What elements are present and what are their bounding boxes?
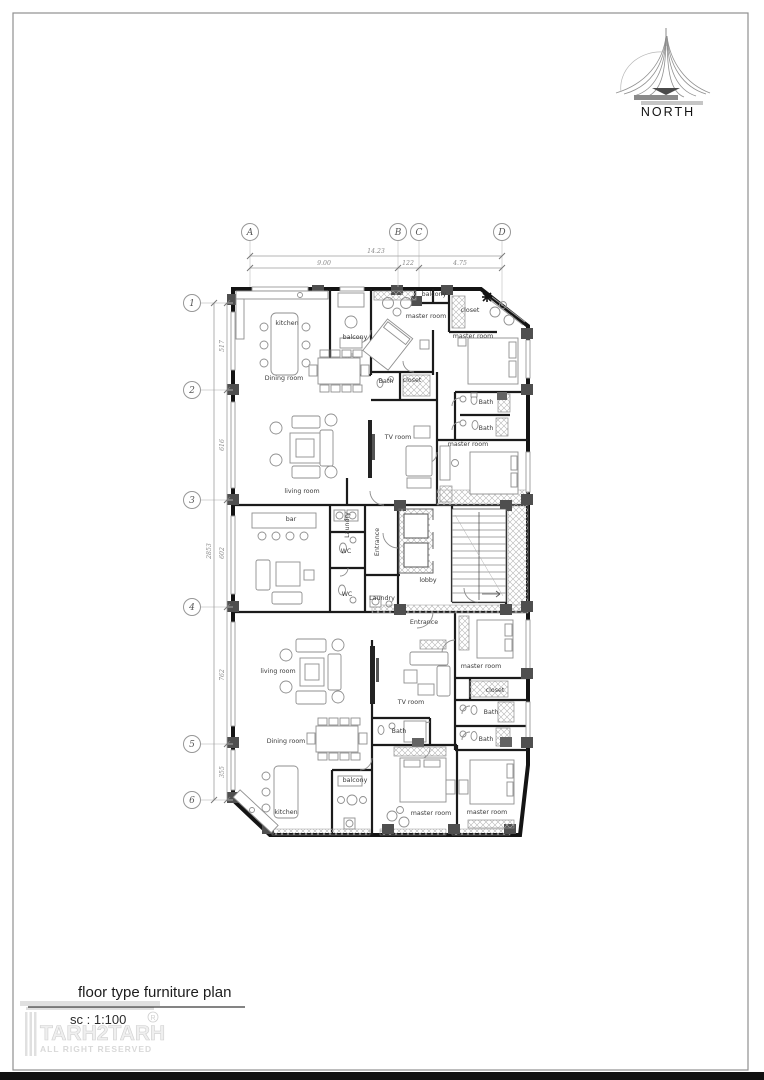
room-label: master room xyxy=(453,333,494,340)
room-label: Bath xyxy=(484,709,499,716)
dimension-label: 517 xyxy=(219,340,226,352)
room-label: WC xyxy=(341,548,352,555)
elevator-block xyxy=(399,509,435,573)
room-label: bar xyxy=(286,516,297,523)
room-label: Bath xyxy=(479,399,494,406)
north-logo-base xyxy=(634,95,678,100)
room-label: Bath xyxy=(379,378,394,385)
room-label: Laundry xyxy=(344,512,351,538)
north-logo-arc xyxy=(621,52,664,92)
grid-bubble-label: C xyxy=(416,228,423,238)
room-label: WC xyxy=(342,591,353,598)
dimension-label: 762 xyxy=(219,669,226,681)
north-logo: NORTH xyxy=(616,28,710,119)
room-label: balcony xyxy=(422,291,447,298)
dimension-label: 2853 xyxy=(206,543,213,560)
room-label: Bath xyxy=(479,425,494,432)
room-label: lobby xyxy=(419,577,437,584)
dimension-label: 616 xyxy=(219,439,226,451)
dimension-label: 4.75 xyxy=(452,260,467,267)
dimension-label: 122 xyxy=(402,260,414,267)
grid-bubble-label: 1 xyxy=(189,299,195,309)
bottom-bar xyxy=(0,1072,764,1080)
watermark-logo: TARH2TARH R ALL RIGHT RESERVED xyxy=(20,1001,165,1056)
room-label: master room xyxy=(411,810,452,817)
dimension-label: 355 xyxy=(219,766,226,778)
grid-bubble-label: 6 xyxy=(189,796,195,806)
grid-bubble-label: 3 xyxy=(189,496,195,506)
room-label: Bath xyxy=(479,736,494,743)
star-ornament xyxy=(482,292,492,302)
room-label: balcony xyxy=(343,334,368,341)
room-label: TV room xyxy=(397,699,424,706)
room-label: kitchen xyxy=(274,809,297,816)
room-label: living room xyxy=(260,668,295,675)
room-label: master room xyxy=(448,441,489,448)
room-label: Entrance xyxy=(374,528,381,556)
floor-plan: kitchenbalconyDining roommaster roombalc… xyxy=(227,285,533,835)
entrance-lower xyxy=(420,640,446,649)
room-label: kitchen xyxy=(275,320,298,327)
staircase xyxy=(452,509,506,602)
room-label: master room xyxy=(406,313,447,320)
grid-bubble-label: 4 xyxy=(188,603,195,613)
room-label: living room xyxy=(284,488,319,495)
grid-bubble-label: 2 xyxy=(188,386,195,396)
registered-letter: R xyxy=(150,1015,155,1022)
dimension-label: 14.23 xyxy=(367,248,385,255)
room-label: master room xyxy=(461,663,502,670)
north-label: NORTH xyxy=(641,105,695,119)
hatch-wall-right xyxy=(508,505,528,612)
north-logo-center xyxy=(652,88,680,95)
grid-bubble-label: D xyxy=(497,228,505,238)
room-label: Dining room xyxy=(267,738,306,745)
drawing-scale: sc : 1:100 xyxy=(70,1012,126,1027)
drawing-title: floor type furniture plan xyxy=(78,984,231,1001)
grid-bubble-label: A xyxy=(246,228,254,238)
dimension-label: 602 xyxy=(219,547,226,559)
dimension-label: 9.00 xyxy=(317,260,331,267)
room-label: master room xyxy=(467,809,508,816)
room-label: TV room xyxy=(384,434,411,441)
room-label: closet xyxy=(403,377,422,384)
elevator-car-2 xyxy=(404,543,428,567)
room-label: balcony xyxy=(343,777,368,784)
architectural-sheet: NORTH xyxy=(0,0,764,1080)
room-label: closet xyxy=(486,687,505,694)
watermark-rights: ALL RIGHT RESERVED xyxy=(40,1044,152,1054)
grid-bubble-label: B xyxy=(394,228,402,238)
room-label: Entrance xyxy=(410,619,438,626)
floor-plan-drawing: NORTH xyxy=(0,0,764,1080)
grid-bubble-label: 5 xyxy=(189,740,195,750)
room-label: closet xyxy=(461,307,480,314)
elevator-car-1 xyxy=(404,514,428,538)
room-label: Dining room xyxy=(265,375,304,382)
room-label: Laundry xyxy=(369,595,395,602)
room-label: Bath xyxy=(392,728,407,735)
